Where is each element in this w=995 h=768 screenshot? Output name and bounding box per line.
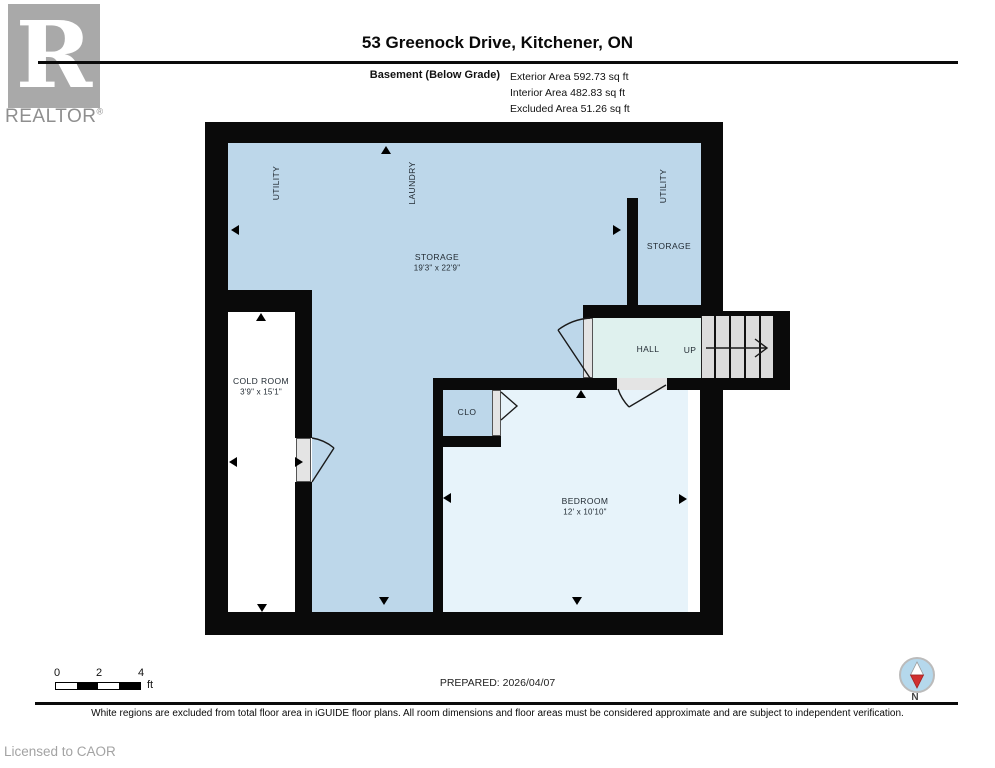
hall-west-door-arc	[558, 318, 590, 330]
marker-arrow-up-icon	[381, 146, 391, 154]
label-laundry: LAUNDRY	[407, 161, 417, 204]
hall-west-door-leaf	[558, 330, 590, 378]
cold-room-door-arc	[312, 438, 334, 448]
dims-bedroom: 12' x 10'10"	[563, 508, 606, 517]
marker-arrow-down-icon	[379, 597, 389, 605]
closet-bifold-door	[501, 392, 517, 420]
marker-arrow-right-icon	[295, 457, 303, 467]
marker-arrow-down-icon	[572, 597, 582, 605]
marker-arrow-up-icon	[256, 313, 266, 321]
marker-arrow-right-icon	[679, 494, 687, 504]
cold-room-door-leaf	[312, 448, 334, 482]
label-storage-right: STORAGE	[647, 241, 691, 251]
hall-south-door-leaf	[629, 385, 666, 407]
marker-arrow-left-icon	[229, 457, 237, 467]
dims-storage-main: 19'3" x 22'9"	[414, 264, 460, 273]
marker-arrow-right-icon	[613, 225, 621, 235]
label-cold-room: COLD ROOM	[233, 376, 289, 386]
label-storage-main: STORAGE	[415, 252, 459, 262]
dims-cold-room: 3'9" x 15'1"	[240, 388, 282, 397]
label-bedroom: BEDROOM	[562, 496, 609, 506]
label-closet: CLO	[458, 407, 477, 417]
marker-arrow-left-icon	[231, 225, 239, 235]
floorplan-page: R REALTOR® 53 Greenock Drive, Kitchener,…	[0, 0, 995, 768]
marker-arrow-up-icon	[576, 390, 586, 398]
label-utility-right: UTILITY	[658, 169, 668, 203]
marker-arrow-left-icon	[443, 493, 451, 503]
label-utility-left: UTILITY	[271, 166, 281, 200]
label-hall: HALL	[637, 344, 660, 354]
hall-south-door-arc	[618, 389, 629, 407]
marker-arrow-down-icon	[257, 604, 267, 612]
label-up: UP	[684, 345, 697, 355]
door-swings-overlay	[0, 0, 995, 768]
